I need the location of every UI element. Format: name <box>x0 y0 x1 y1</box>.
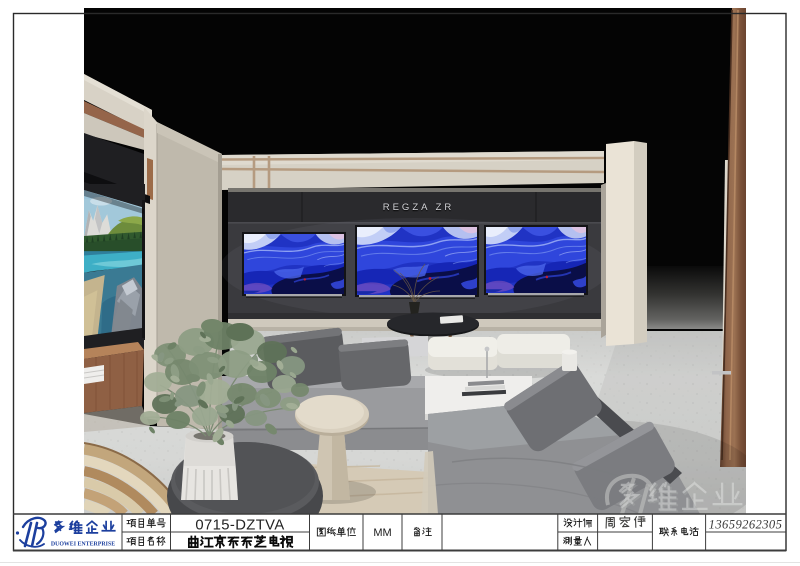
svg-text:13659262305: 13659262305 <box>709 518 783 532</box>
svg-text:MM: MM <box>373 527 391 539</box>
svg-text:0715-DZTVA: 0715-DZTVA <box>195 518 284 534</box>
svg-text:DUOWEI ENTERPRISE: DUOWEI ENTERPRISE <box>51 542 115 548</box>
